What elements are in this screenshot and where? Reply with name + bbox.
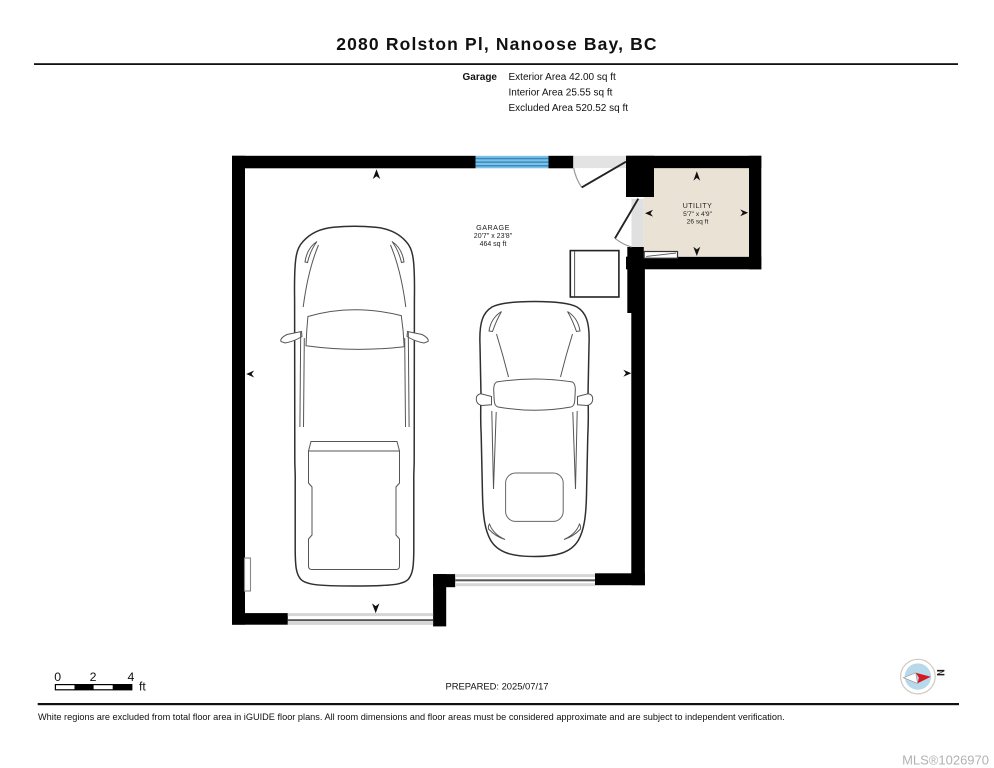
svg-text:0: 0 xyxy=(54,670,61,684)
svg-text:Interior Area 25.55 sq ft: Interior Area 25.55 sq ft xyxy=(509,88,613,99)
svg-text:Exterior Area 42.00 sq ft: Exterior Area 42.00 sq ft xyxy=(509,72,617,83)
svg-text:MLS®1026970: MLS®1026970 xyxy=(902,753,989,768)
svg-text:2080 Rolston Pl, Nanoose Bay,: 2080 Rolston Pl, Nanoose Bay, BC xyxy=(336,34,657,54)
svg-text:White regions are excluded fro: White regions are excluded from total fl… xyxy=(38,712,785,722)
svg-text:Excluded Area 520.52 sq ft: Excluded Area 520.52 sq ft xyxy=(509,103,629,114)
svg-text:5'7" x 4'9": 5'7" x 4'9" xyxy=(683,211,712,218)
svg-text:2: 2 xyxy=(90,670,97,684)
svg-text:20'7" x 23'8": 20'7" x 23'8" xyxy=(474,233,513,240)
svg-text:26 sq ft: 26 sq ft xyxy=(687,219,709,226)
svg-text:UTILITY: UTILITY xyxy=(683,203,713,210)
svg-text:4: 4 xyxy=(127,670,134,684)
svg-text:464 sq ft: 464 sq ft xyxy=(480,241,507,248)
svg-text:Garage: Garage xyxy=(463,72,498,83)
svg-text:ft: ft xyxy=(139,680,146,694)
svg-text:PREPARED: 2025/07/17: PREPARED: 2025/07/17 xyxy=(445,680,548,691)
svg-text:GARAGE: GARAGE xyxy=(476,223,510,232)
